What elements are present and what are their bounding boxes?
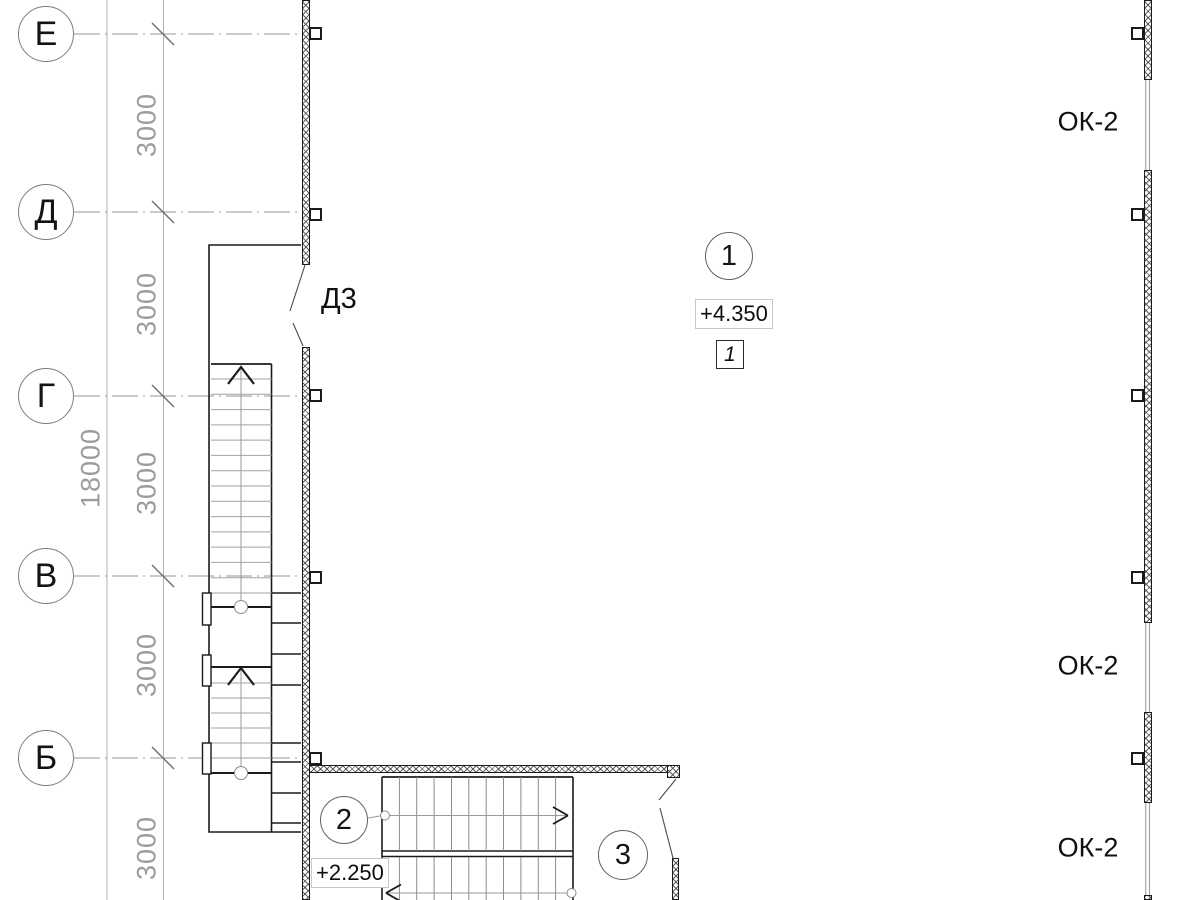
position-marker-3: 3 bbox=[598, 830, 648, 880]
window-mark-label-2: ОК-2 bbox=[1058, 653, 1119, 680]
pilaster-right-axis-e bbox=[1131, 27, 1144, 40]
pilaster-right-axis-d bbox=[1131, 208, 1144, 221]
axis-label: Е bbox=[35, 17, 58, 51]
axis-label: Б bbox=[35, 741, 57, 775]
right-wall-segment-4 bbox=[1144, 895, 1152, 900]
pilaster-right-axis-b bbox=[1131, 752, 1144, 765]
door-d3-leaf-lines bbox=[290, 262, 306, 346]
section-flag-box: 1 bbox=[716, 340, 744, 369]
axis-label: Д bbox=[34, 195, 57, 229]
floor-plan-canvas: Е Д Г В Б 3000 3000 3000 3000 3000 18000… bbox=[0, 0, 1200, 900]
axis-bubble-v: В bbox=[18, 548, 74, 604]
pilaster-left-axis-g bbox=[309, 389, 322, 402]
left-wall-lower-segment bbox=[302, 347, 310, 900]
bottom-wall-end-return bbox=[667, 765, 680, 778]
right-wall-segment-3 bbox=[1144, 712, 1152, 803]
marker-number: 3 bbox=[615, 841, 631, 870]
bay-dimension-3: 3000 bbox=[134, 451, 161, 515]
pilaster-right-axis-g bbox=[1131, 389, 1144, 402]
marker-number: 1 bbox=[721, 242, 737, 271]
bay-dimension-1: 3000 bbox=[134, 93, 161, 157]
pilaster-right-axis-v bbox=[1131, 571, 1144, 584]
axis-bubble-g: Г bbox=[18, 368, 74, 424]
stair-rail-posts bbox=[203, 593, 212, 774]
position-marker-1: 1 bbox=[705, 232, 753, 280]
axis-label: Г bbox=[37, 379, 55, 413]
window-mark-label-3: ОК-2 bbox=[1058, 835, 1119, 862]
pilaster-left-axis-d bbox=[309, 208, 322, 221]
marker-number: 2 bbox=[336, 806, 352, 835]
axis-bubble-b: Б bbox=[18, 730, 74, 786]
right-wall-segment-2 bbox=[1144, 170, 1152, 623]
bottom-stairs-outline bbox=[382, 777, 573, 900]
pilaster-left-axis-v bbox=[309, 571, 322, 584]
door-bottom-leaf-lines bbox=[659, 779, 676, 858]
level-mark-upper: +4.350 bbox=[695, 299, 773, 329]
position-marker-2: 2 bbox=[320, 796, 368, 844]
axis-bubble-e: Е bbox=[18, 6, 74, 62]
bottom-wall bbox=[309, 765, 673, 773]
stair-side-strip-lines bbox=[272, 593, 302, 823]
bottom-door-jamb-stub bbox=[672, 858, 679, 900]
pilaster-left-axis-e bbox=[309, 27, 322, 40]
window-mark-label-1: ОК-2 bbox=[1058, 109, 1119, 136]
stairwell-outline bbox=[209, 245, 301, 832]
door-mark-label: Д3 bbox=[321, 285, 357, 314]
axis-grid-lines bbox=[74, 34, 301, 758]
axis-bubble-d: Д bbox=[18, 184, 74, 240]
level-mark-landing: +2.250 bbox=[311, 858, 389, 888]
right-wall-segment-1 bbox=[1144, 0, 1152, 80]
bay-dimension-5: 3000 bbox=[134, 816, 161, 880]
pilaster-left-axis-b bbox=[309, 752, 322, 765]
axis-label: В bbox=[35, 559, 58, 593]
total-dimension: 18000 bbox=[78, 428, 105, 508]
bay-dimension-4: 3000 bbox=[134, 633, 161, 697]
bay-dimension-2: 3000 bbox=[134, 272, 161, 336]
bottom-stairs-treads bbox=[399, 777, 555, 900]
